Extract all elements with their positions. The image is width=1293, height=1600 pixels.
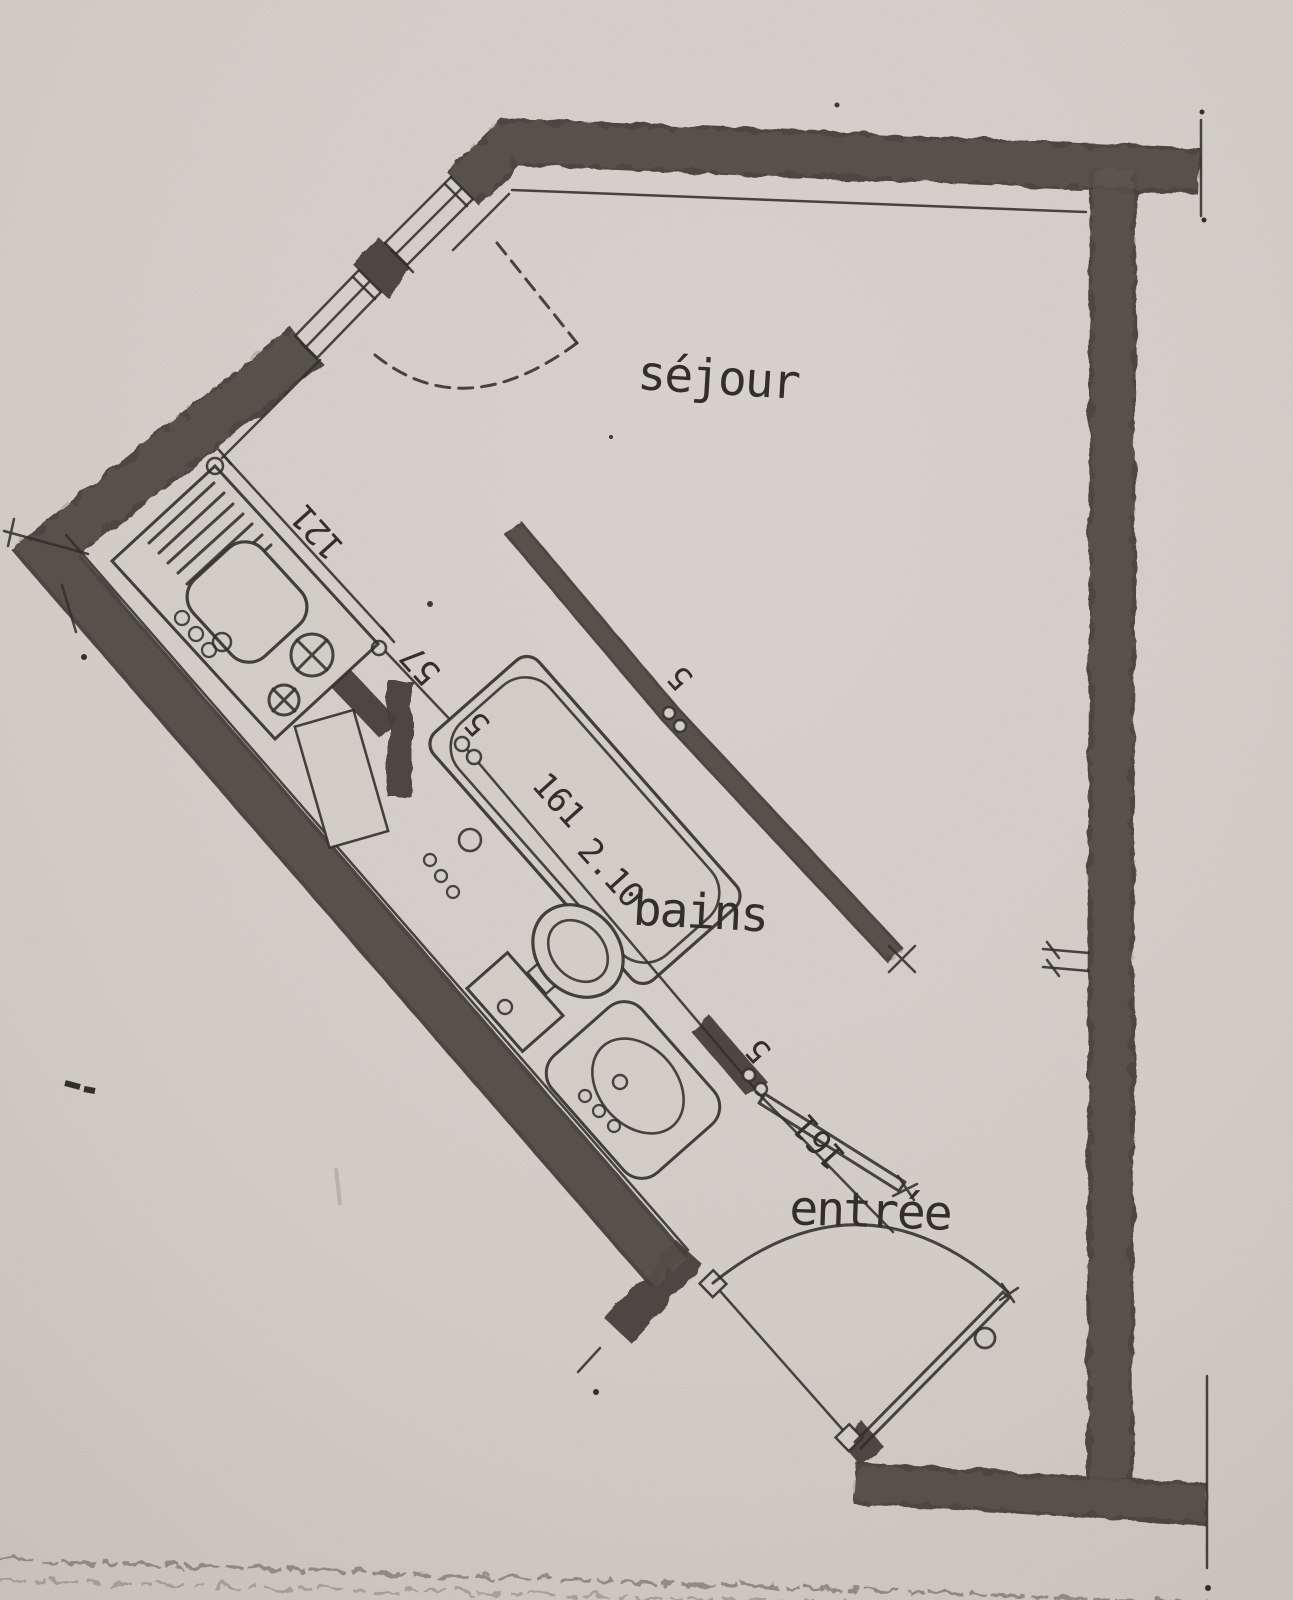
- floor-plan-drawing: séjour bains entrée 121 57 5 5 161 2.10 …: [0, 0, 1293, 1600]
- scanned-floor-plan: séjour bains entrée 121 57 5 5 161 2.10 …: [0, 0, 1293, 1600]
- scan-grain-overlay: [0, 0, 1293, 1600]
